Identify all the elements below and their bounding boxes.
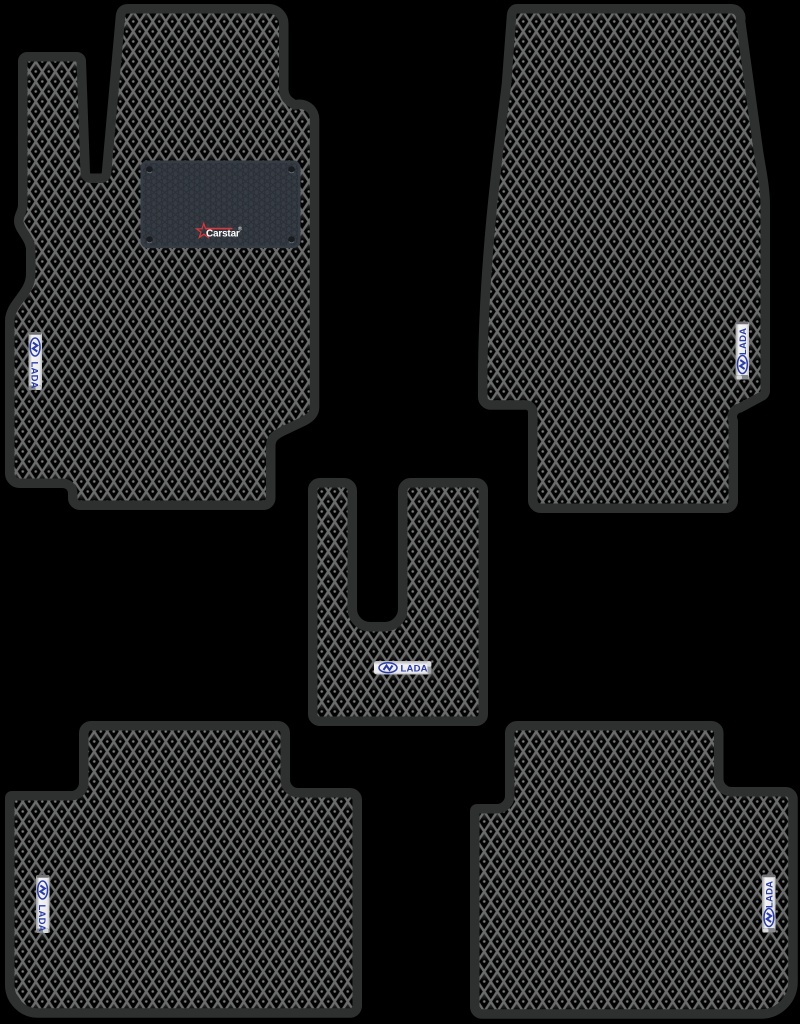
svg-text:LADA: LADA [36,905,47,932]
svg-text:LADA: LADA [401,663,428,674]
svg-text:LADA: LADA [765,881,776,908]
svg-text:LADA: LADA [738,328,749,355]
svg-text:®: ® [238,226,242,233]
svg-text:LADA: LADA [28,362,39,389]
svg-text:Carstar: Carstar [206,229,240,240]
